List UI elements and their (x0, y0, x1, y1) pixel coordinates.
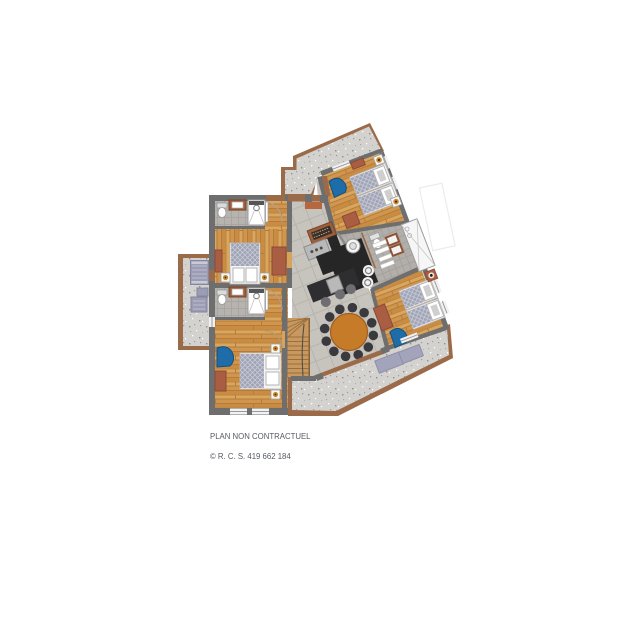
svg-text:PLAN NON CONTRACTUEL: PLAN NON CONTRACTUEL (210, 432, 311, 441)
svg-text:© R. C. S. 419 662 184: © R. C. S. 419 662 184 (210, 452, 291, 461)
